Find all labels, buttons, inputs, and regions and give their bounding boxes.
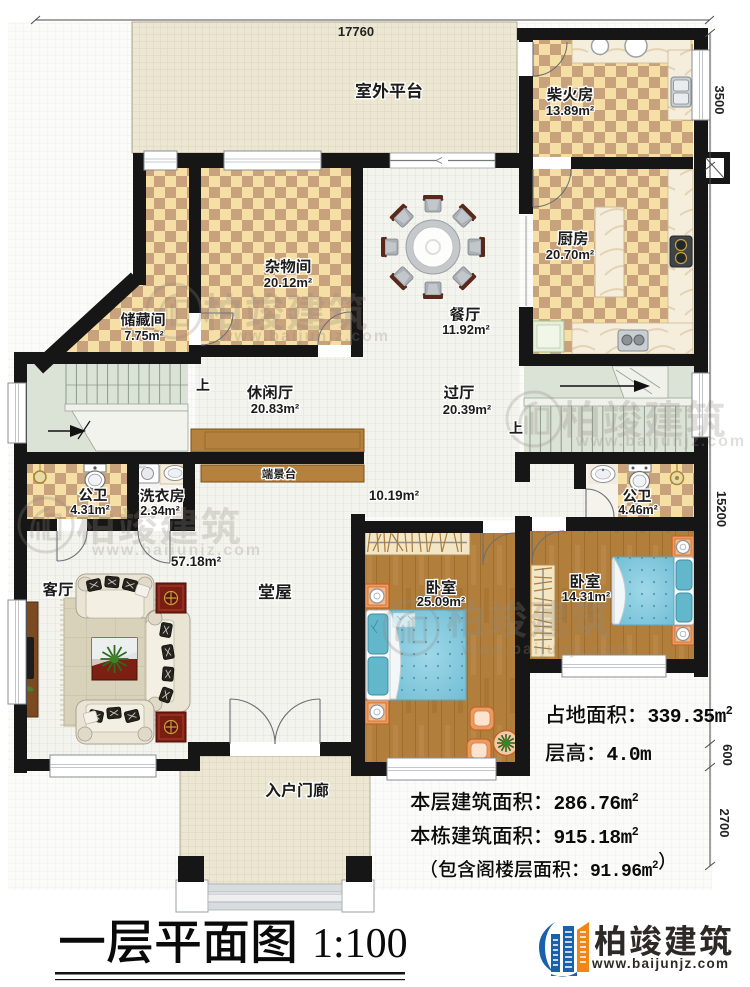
svg-text:25.09m²: 25.09m² [417,594,466,609]
svg-text:上: 上 [509,418,523,438]
svg-text:17760: 17760 [338,24,374,39]
svg-text:1:100: 1:100 [312,921,408,967]
svg-text:厨房: 厨房 [557,227,588,249]
svg-text:3500: 3500 [712,86,727,115]
svg-text:57.18m²: 57.18m² [171,554,222,569]
svg-text:休闲厅: 休闲厅 [247,381,294,403]
svg-text:2.34m²: 2.34m² [140,504,180,518]
svg-text:7.75m²: 7.75m² [124,329,164,343]
svg-text:10.19m²: 10.19m² [369,488,420,503]
svg-text:室外平台: 室外平台 [355,77,423,102]
svg-text:14.31m²: 14.31m² [562,589,611,604]
svg-text:洗衣房: 洗衣房 [139,485,184,506]
svg-text:端景台: 端景台 [262,466,297,482]
svg-text:公卫: 公卫 [79,484,108,505]
svg-text:柴火房: 柴火房 [547,83,594,105]
svg-text:过厅: 过厅 [443,381,474,403]
svg-text:上: 上 [196,375,210,395]
svg-text:堂屋: 堂屋 [258,578,292,603]
svg-text:储藏间: 储藏间 [120,309,165,330]
svg-text:600: 600 [720,744,735,766]
svg-text:www.baijunjz.com: www.baijunjz.com [575,427,746,451]
svg-text:4.46m²: 4.46m² [618,503,658,517]
svg-text:www.baijunjz.com: www.baijunjz.com [461,635,632,659]
svg-text:入户门廊: 入户门廊 [265,777,329,801]
svg-text:www.baijunjz.com: www.baijunjz.com [591,956,729,971]
svg-text:客厅: 客厅 [42,578,73,600]
svg-text:一层平面图: 一层平面图 [58,903,298,973]
svg-text:20.12m²: 20.12m² [264,275,313,290]
svg-text:20.70m²: 20.70m² [546,247,595,262]
svg-text:15200: 15200 [714,491,729,527]
svg-text:4.31m²: 4.31m² [70,503,110,517]
svg-text:杂物间: 杂物间 [265,255,312,277]
svg-text:20.39m²: 20.39m² [443,402,492,417]
svg-text:2700: 2700 [717,809,732,838]
svg-text:13.89m²: 13.89m² [546,103,595,118]
svg-text:20.83m²: 20.83m² [251,401,300,416]
svg-text:11.92m²: 11.92m² [442,322,490,337]
svg-text:www.baijunjz.com: www.baijunjz.com [219,322,390,346]
